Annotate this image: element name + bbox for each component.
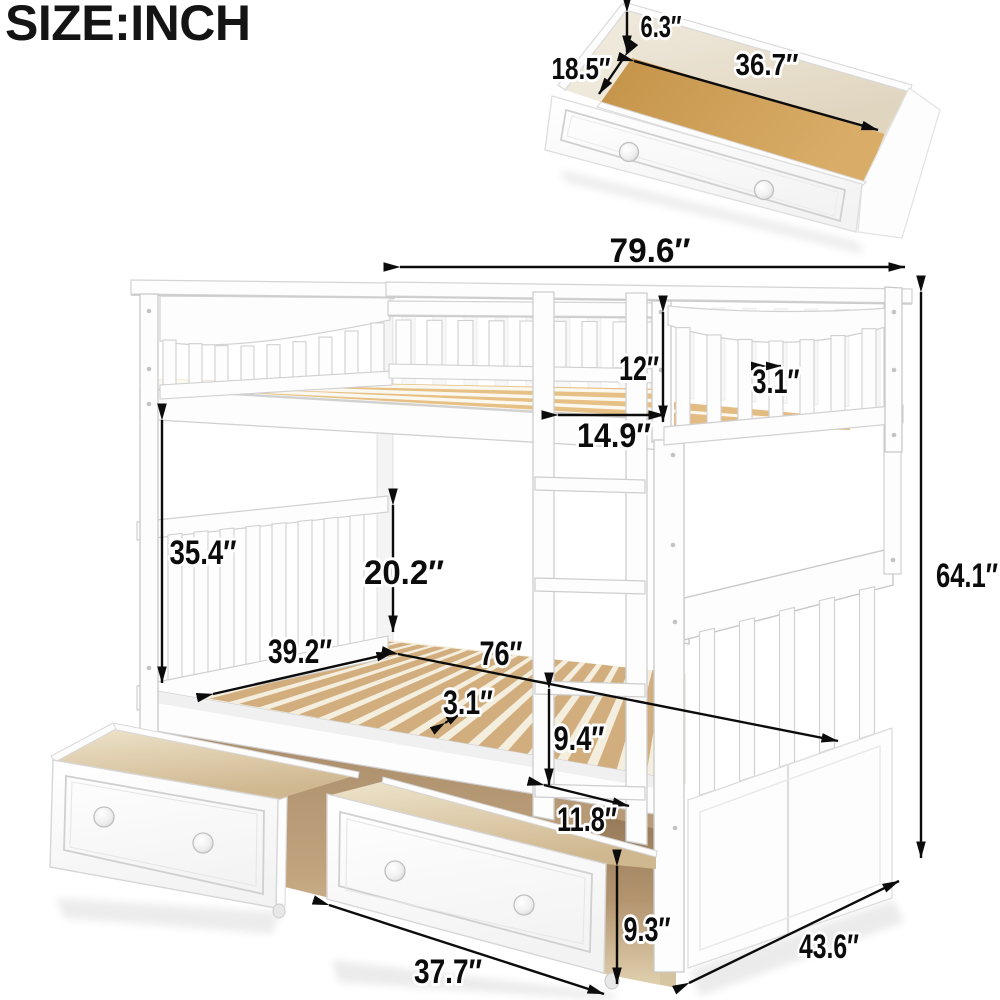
svg-text:6.3″: 6.3″	[641, 9, 682, 44]
svg-text:11.8″: 11.8″	[557, 801, 617, 839]
svg-text:36.7″: 36.7″	[736, 47, 799, 82]
svg-text:SIZE:INCH: SIZE:INCH	[5, 0, 251, 51]
svg-text:14.9″: 14.9″	[577, 417, 651, 455]
svg-text:9.4″: 9.4″	[554, 720, 605, 758]
svg-text:9.3″: 9.3″	[624, 911, 671, 949]
svg-text:76″: 76″	[480, 635, 523, 673]
svg-text:79.6″: 79.6″	[610, 232, 691, 270]
svg-text:20.2″: 20.2″	[364, 554, 444, 592]
svg-text:43.6″: 43.6″	[799, 928, 859, 966]
svg-text:3.1″: 3.1″	[443, 684, 493, 722]
svg-text:18.5″: 18.5″	[552, 51, 611, 86]
svg-text:39.2″: 39.2″	[268, 633, 332, 671]
svg-text:35.4″: 35.4″	[170, 534, 237, 572]
svg-text:37.7″: 37.7″	[414, 953, 482, 991]
svg-text:64.1″: 64.1″	[936, 557, 998, 595]
svg-text:3.1″: 3.1″	[753, 363, 800, 401]
svg-text:12″: 12″	[619, 350, 659, 388]
